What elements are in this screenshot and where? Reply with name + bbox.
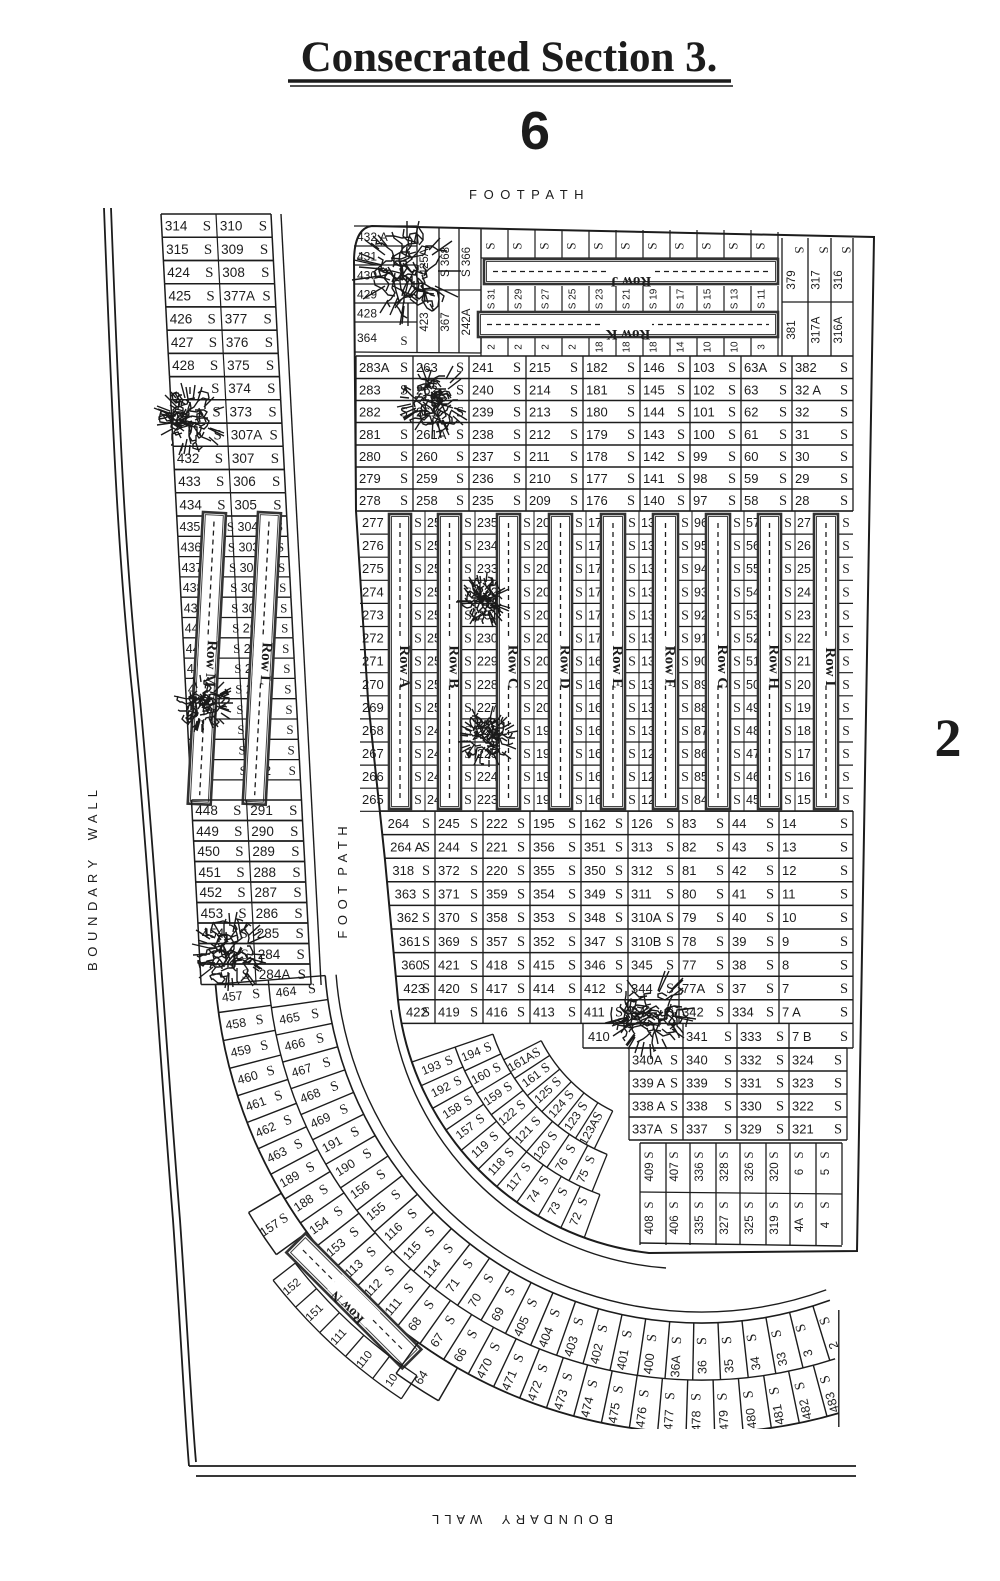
svg-text:S: S bbox=[568, 863, 576, 879]
svg-text:S: S bbox=[627, 405, 635, 421]
svg-text:24: 24 bbox=[797, 585, 811, 599]
svg-text:S 19: S 19 bbox=[649, 288, 660, 309]
svg-text:266: 266 bbox=[362, 769, 384, 784]
svg-text:S: S bbox=[289, 763, 296, 778]
svg-text:331: 331 bbox=[740, 1076, 762, 1091]
svg-text:S 13: S 13 bbox=[730, 288, 741, 309]
svg-text:S: S bbox=[264, 312, 272, 328]
svg-text:S: S bbox=[840, 981, 848, 997]
svg-text:326: 326 bbox=[744, 1162, 756, 1181]
svg-text:S: S bbox=[236, 702, 243, 717]
svg-text:S: S bbox=[271, 451, 279, 467]
svg-text:400: 400 bbox=[641, 1353, 657, 1375]
svg-text:S: S bbox=[470, 1005, 478, 1021]
svg-text:S: S bbox=[627, 493, 635, 509]
svg-text:238: 238 bbox=[472, 427, 494, 442]
svg-text:S: S bbox=[733, 655, 741, 670]
svg-text:S: S bbox=[842, 631, 850, 646]
svg-text:333: 333 bbox=[740, 1029, 762, 1044]
svg-text:S: S bbox=[839, 246, 854, 253]
svg-text:S: S bbox=[691, 1151, 706, 1158]
svg-text:352: 352 bbox=[533, 934, 555, 949]
svg-text:S: S bbox=[666, 1201, 681, 1208]
svg-text:S: S bbox=[716, 934, 724, 950]
svg-text:S: S bbox=[523, 747, 531, 762]
svg-text:S: S bbox=[670, 1099, 678, 1115]
svg-text:S: S bbox=[517, 1005, 525, 1021]
svg-text:S: S bbox=[716, 887, 724, 903]
svg-text:182: 182 bbox=[586, 360, 608, 375]
svg-text:81: 81 bbox=[682, 863, 696, 878]
svg-text:235: 235 bbox=[477, 516, 498, 530]
svg-text:S: S bbox=[724, 1122, 732, 1138]
svg-text:S: S bbox=[628, 701, 636, 716]
svg-text:S: S bbox=[681, 539, 689, 554]
svg-text:S: S bbox=[464, 770, 472, 785]
svg-text:229: 229 bbox=[477, 655, 498, 669]
svg-text:S: S bbox=[232, 621, 239, 636]
svg-text:374: 374 bbox=[228, 381, 251, 396]
svg-text:S: S bbox=[842, 723, 850, 738]
svg-text:S 366: S 366 bbox=[461, 247, 473, 277]
svg-text:142: 142 bbox=[643, 449, 665, 464]
svg-text:259: 259 bbox=[416, 471, 438, 486]
svg-text:353: 353 bbox=[533, 910, 555, 925]
svg-text:356: 356 bbox=[533, 839, 555, 854]
svg-text:82: 82 bbox=[682, 839, 696, 854]
svg-text:S: S bbox=[627, 449, 635, 465]
svg-text:S: S bbox=[728, 471, 736, 487]
svg-text:Row A: Row A bbox=[396, 645, 412, 688]
svg-text:212: 212 bbox=[529, 427, 551, 442]
svg-text:S: S bbox=[840, 1005, 848, 1021]
svg-text:S: S bbox=[464, 793, 472, 808]
svg-text:S: S bbox=[237, 722, 244, 737]
svg-text:59: 59 bbox=[744, 471, 758, 486]
svg-text:377: 377 bbox=[225, 312, 248, 327]
svg-text:408: 408 bbox=[644, 1215, 656, 1234]
svg-text:141: 141 bbox=[643, 471, 665, 486]
svg-text:S: S bbox=[666, 887, 674, 903]
svg-text:S: S bbox=[575, 539, 583, 554]
svg-text:S: S bbox=[513, 383, 521, 399]
svg-text:S: S bbox=[681, 632, 689, 647]
svg-text:S: S bbox=[817, 1201, 832, 1208]
svg-text:237: 237 bbox=[472, 449, 494, 464]
svg-text:S: S bbox=[724, 1076, 732, 1092]
svg-text:311: 311 bbox=[631, 887, 652, 902]
svg-text:285: 285 bbox=[257, 926, 280, 941]
svg-text:288: 288 bbox=[254, 865, 277, 880]
svg-text:S: S bbox=[456, 449, 464, 465]
svg-text:S: S bbox=[834, 1053, 842, 1069]
svg-text:S: S bbox=[784, 793, 792, 808]
svg-text:S: S bbox=[779, 427, 787, 443]
svg-text:S: S bbox=[792, 246, 807, 253]
svg-text:S: S bbox=[260, 242, 268, 258]
svg-text:S: S bbox=[283, 661, 290, 676]
svg-text:2: 2 bbox=[514, 344, 525, 350]
svg-text:S: S bbox=[236, 865, 244, 881]
svg-text:S: S bbox=[464, 539, 472, 554]
svg-text:429: 429 bbox=[357, 288, 377, 302]
svg-text:214: 214 bbox=[529, 383, 551, 398]
svg-text:314: 314 bbox=[165, 219, 188, 234]
svg-text:S: S bbox=[523, 585, 531, 600]
svg-text:27: 27 bbox=[797, 516, 811, 530]
svg-text:S: S bbox=[513, 449, 521, 465]
svg-text:S: S bbox=[575, 562, 583, 577]
svg-text:406: 406 bbox=[669, 1215, 681, 1234]
svg-text:278: 278 bbox=[359, 493, 381, 508]
svg-text:144: 144 bbox=[643, 405, 665, 420]
svg-text:363: 363 bbox=[395, 887, 417, 902]
svg-text:279: 279 bbox=[359, 471, 381, 486]
svg-text:S: S bbox=[628, 724, 636, 739]
svg-text:21: 21 bbox=[797, 655, 811, 669]
svg-text:261A: 261A bbox=[416, 427, 447, 442]
svg-text:S: S bbox=[570, 471, 578, 487]
svg-text:S: S bbox=[575, 678, 583, 693]
svg-text:S: S bbox=[523, 632, 531, 647]
svg-text:S: S bbox=[842, 608, 850, 623]
svg-text:S: S bbox=[470, 981, 478, 997]
svg-text:S: S bbox=[464, 701, 472, 716]
svg-text:18: 18 bbox=[595, 341, 606, 353]
svg-text:354: 354 bbox=[533, 887, 555, 902]
svg-text:77: 77 bbox=[682, 957, 696, 972]
svg-text:S: S bbox=[282, 641, 289, 656]
svg-text:S: S bbox=[766, 863, 774, 879]
svg-text:417: 417 bbox=[486, 981, 508, 996]
svg-text:304: 304 bbox=[238, 520, 259, 534]
svg-text:264 A: 264 A bbox=[390, 839, 424, 854]
svg-text:B O U N D A R Y W A L L: B O U N D A R Y W A L L bbox=[431, 1512, 613, 1527]
svg-text:18: 18 bbox=[797, 724, 811, 738]
svg-text:367: 367 bbox=[440, 312, 452, 331]
svg-text:213: 213 bbox=[529, 405, 551, 420]
svg-text:S: S bbox=[234, 824, 242, 840]
svg-text:S: S bbox=[575, 793, 583, 808]
svg-text:307A: 307A bbox=[231, 428, 263, 443]
svg-text:412: 412 bbox=[584, 981, 606, 996]
svg-text:S: S bbox=[307, 982, 316, 998]
svg-text:338: 338 bbox=[686, 1099, 708, 1114]
svg-text:S: S bbox=[784, 516, 792, 531]
svg-text:227: 227 bbox=[477, 701, 498, 715]
svg-text:Row G: Row G bbox=[714, 645, 730, 690]
svg-text:S: S bbox=[834, 1076, 842, 1092]
svg-text:330: 330 bbox=[740, 1099, 762, 1114]
svg-text:S: S bbox=[215, 451, 223, 467]
svg-text:407: 407 bbox=[669, 1162, 681, 1181]
svg-text:63: 63 bbox=[744, 383, 758, 398]
svg-text:215: 215 bbox=[529, 360, 551, 375]
svg-text:235: 235 bbox=[472, 493, 494, 508]
svg-text:478: 478 bbox=[689, 1411, 703, 1432]
svg-text:S: S bbox=[233, 641, 240, 656]
svg-text:35: 35 bbox=[722, 1359, 737, 1374]
svg-text:S: S bbox=[724, 1029, 732, 1045]
svg-text:349: 349 bbox=[584, 887, 606, 902]
svg-text:S: S bbox=[741, 1151, 756, 1158]
svg-text:321: 321 bbox=[792, 1122, 814, 1137]
svg-text:S: S bbox=[670, 1336, 685, 1345]
svg-text:316: 316 bbox=[833, 270, 845, 289]
svg-text:270: 270 bbox=[362, 677, 384, 692]
svg-text:S: S bbox=[235, 682, 242, 697]
svg-text:7 B: 7 B bbox=[792, 1029, 812, 1044]
svg-text:S: S bbox=[414, 609, 422, 624]
svg-text:377A: 377A bbox=[224, 288, 256, 303]
svg-text:S: S bbox=[834, 1099, 842, 1115]
svg-text:223: 223 bbox=[477, 793, 498, 807]
svg-text:220: 220 bbox=[486, 863, 508, 878]
svg-text:S: S bbox=[615, 957, 623, 973]
svg-text:371: 371 bbox=[438, 887, 460, 902]
svg-text:209: 209 bbox=[529, 493, 551, 508]
svg-text:S: S bbox=[677, 427, 685, 443]
svg-text:39: 39 bbox=[732, 934, 746, 949]
svg-text:S: S bbox=[517, 910, 525, 926]
svg-text:S: S bbox=[681, 655, 689, 670]
svg-text:S: S bbox=[766, 1201, 781, 1208]
svg-text:425: 425 bbox=[169, 288, 192, 303]
svg-text:126: 126 bbox=[631, 816, 653, 831]
svg-text:275: 275 bbox=[362, 561, 384, 576]
svg-text:S: S bbox=[456, 493, 464, 509]
svg-text:316A: 316A bbox=[833, 316, 845, 343]
svg-text:S: S bbox=[733, 585, 741, 600]
svg-text:S: S bbox=[627, 383, 635, 399]
svg-text:236: 236 bbox=[472, 471, 494, 486]
svg-text:S: S bbox=[677, 471, 685, 487]
svg-text:36A: 36A bbox=[668, 1354, 683, 1378]
svg-text:S: S bbox=[840, 360, 848, 376]
svg-text:324: 324 bbox=[792, 1053, 814, 1068]
svg-text:S 15: S 15 bbox=[703, 288, 714, 309]
svg-text:S: S bbox=[470, 863, 478, 879]
svg-text:451: 451 bbox=[199, 865, 222, 880]
svg-text:38: 38 bbox=[732, 957, 746, 972]
svg-text:S: S bbox=[568, 839, 576, 855]
svg-text:370: 370 bbox=[438, 910, 460, 925]
svg-text:S: S bbox=[817, 246, 832, 253]
svg-text:Row E: Row E bbox=[609, 645, 625, 688]
svg-text:S: S bbox=[228, 539, 235, 554]
svg-text:S: S bbox=[666, 1151, 681, 1158]
svg-text:S: S bbox=[663, 1392, 678, 1401]
svg-text:10: 10 bbox=[782, 910, 796, 925]
svg-text:339: 339 bbox=[686, 1076, 708, 1091]
svg-text:S: S bbox=[728, 383, 736, 399]
svg-text:S: S bbox=[733, 678, 741, 693]
svg-text:S: S bbox=[779, 360, 787, 376]
svg-text:230: 230 bbox=[477, 632, 498, 646]
svg-text:S: S bbox=[293, 885, 301, 901]
svg-text:12: 12 bbox=[782, 863, 796, 878]
svg-text:S: S bbox=[414, 678, 422, 693]
svg-text:336: 336 bbox=[694, 1162, 706, 1181]
svg-text:181: 181 bbox=[586, 383, 608, 398]
svg-text:S: S bbox=[575, 655, 583, 670]
svg-text:S: S bbox=[791, 1151, 806, 1158]
svg-text:322: 322 bbox=[792, 1099, 814, 1114]
svg-text:178: 178 bbox=[586, 449, 608, 464]
svg-text:345: 345 bbox=[631, 957, 653, 972]
svg-text:S: S bbox=[776, 1099, 784, 1115]
svg-text:32: 32 bbox=[795, 405, 809, 420]
svg-text:267: 267 bbox=[362, 746, 384, 761]
svg-text:358: 358 bbox=[486, 910, 508, 925]
svg-text:162: 162 bbox=[584, 816, 606, 831]
svg-text:S: S bbox=[230, 580, 237, 595]
svg-text:305: 305 bbox=[234, 497, 257, 512]
svg-text:S: S bbox=[733, 701, 741, 716]
svg-text:S: S bbox=[615, 934, 623, 950]
svg-text:S: S bbox=[724, 1099, 732, 1115]
svg-text:S: S bbox=[294, 906, 302, 922]
svg-text:S: S bbox=[840, 493, 848, 509]
svg-text:S: S bbox=[523, 678, 531, 693]
svg-text:S: S bbox=[840, 839, 848, 855]
svg-text:S: S bbox=[615, 839, 623, 855]
svg-text:43: 43 bbox=[732, 839, 746, 854]
svg-text:S: S bbox=[400, 333, 407, 348]
svg-text:S: S bbox=[517, 887, 525, 903]
svg-text:S: S bbox=[575, 632, 583, 647]
svg-text:S: S bbox=[615, 863, 623, 879]
svg-text:S: S bbox=[766, 957, 774, 973]
svg-text:S: S bbox=[287, 742, 294, 757]
svg-text:S: S bbox=[628, 516, 636, 531]
svg-text:S: S bbox=[766, 910, 774, 926]
svg-text:26: 26 bbox=[797, 539, 811, 553]
svg-text:355: 355 bbox=[533, 863, 555, 878]
svg-text:341: 341 bbox=[686, 1029, 708, 1044]
svg-text:S: S bbox=[456, 383, 464, 399]
svg-text:310A: 310A bbox=[631, 910, 662, 925]
svg-text:241: 241 bbox=[472, 360, 494, 375]
svg-text:S: S bbox=[672, 242, 687, 249]
svg-text:S: S bbox=[231, 600, 238, 615]
svg-text:S: S bbox=[840, 934, 848, 950]
svg-text:S: S bbox=[695, 1337, 710, 1345]
svg-text:S: S bbox=[628, 655, 636, 670]
svg-text:10: 10 bbox=[703, 341, 714, 353]
svg-text:283A: 283A bbox=[359, 360, 390, 375]
svg-text:317: 317 bbox=[811, 270, 823, 289]
svg-text:S: S bbox=[681, 724, 689, 739]
svg-text:S: S bbox=[513, 493, 521, 509]
svg-text:7 A: 7 A bbox=[782, 1005, 801, 1020]
svg-text:337A: 337A bbox=[632, 1122, 663, 1137]
svg-text:S: S bbox=[670, 1076, 678, 1092]
svg-text:77A: 77A bbox=[682, 981, 705, 996]
svg-text:414: 414 bbox=[533, 981, 555, 996]
svg-text:S: S bbox=[422, 957, 430, 973]
svg-text:312: 312 bbox=[631, 863, 653, 878]
svg-text:S: S bbox=[414, 655, 422, 670]
svg-text:S: S bbox=[641, 1151, 656, 1158]
svg-text:310B: 310B bbox=[631, 934, 661, 949]
svg-text:453: 453 bbox=[201, 906, 224, 921]
svg-text:195: 195 bbox=[533, 816, 555, 831]
svg-text:S: S bbox=[627, 360, 635, 376]
svg-text:7: 7 bbox=[782, 981, 789, 996]
svg-text:428: 428 bbox=[172, 358, 195, 373]
svg-text:S: S bbox=[568, 887, 576, 903]
svg-text:S: S bbox=[776, 1029, 784, 1045]
svg-text:4: 4 bbox=[820, 1221, 832, 1228]
svg-text:62: 62 bbox=[744, 405, 758, 420]
svg-text:S: S bbox=[575, 609, 583, 624]
svg-text:B O U N D A R Y W A L L: B O U N D A R Y W A L L bbox=[85, 789, 100, 971]
svg-text:S: S bbox=[715, 1392, 730, 1401]
svg-text:S: S bbox=[523, 724, 531, 739]
svg-text:97: 97 bbox=[693, 493, 707, 508]
svg-text:268: 268 bbox=[362, 723, 384, 738]
svg-text:S: S bbox=[523, 793, 531, 808]
svg-text:S: S bbox=[628, 585, 636, 600]
svg-text:S: S bbox=[289, 803, 297, 819]
svg-text:S: S bbox=[733, 609, 741, 624]
svg-text:347: 347 bbox=[584, 934, 606, 949]
svg-text:277: 277 bbox=[362, 515, 384, 530]
svg-text:S: S bbox=[791, 1201, 806, 1208]
svg-text:177: 177 bbox=[586, 471, 608, 486]
svg-text:S: S bbox=[842, 561, 850, 576]
svg-text:S: S bbox=[776, 1076, 784, 1092]
svg-text:S: S bbox=[681, 770, 689, 785]
svg-text:S 11: S 11 bbox=[757, 289, 768, 309]
svg-text:F O O T P A T H: F O O T P A T H bbox=[469, 187, 585, 202]
svg-text:S: S bbox=[776, 1122, 784, 1138]
svg-text:359: 359 bbox=[486, 887, 508, 902]
svg-text:S: S bbox=[568, 1005, 576, 1021]
svg-text:313: 313 bbox=[631, 839, 653, 854]
svg-text:S: S bbox=[575, 724, 583, 739]
svg-text:S: S bbox=[470, 957, 478, 973]
svg-text:S: S bbox=[252, 987, 261, 1003]
svg-text:S: S bbox=[840, 957, 848, 973]
svg-text:S: S bbox=[784, 678, 792, 693]
svg-text:Row F: Row F bbox=[662, 646, 678, 688]
svg-text:S: S bbox=[216, 474, 224, 490]
svg-text:S: S bbox=[570, 383, 578, 399]
svg-text:286: 286 bbox=[256, 906, 279, 921]
svg-text:328: 328 bbox=[719, 1162, 731, 1181]
svg-text:S: S bbox=[273, 497, 281, 513]
svg-text:S: S bbox=[615, 981, 623, 997]
svg-text:179: 179 bbox=[586, 427, 608, 442]
svg-text:S: S bbox=[400, 471, 408, 487]
svg-text:S: S bbox=[575, 747, 583, 762]
svg-text:S: S bbox=[464, 655, 472, 670]
svg-text:421: 421 bbox=[438, 957, 460, 972]
svg-text:S: S bbox=[840, 863, 848, 879]
svg-text:S: S bbox=[720, 1336, 736, 1345]
svg-text:S: S bbox=[716, 1151, 731, 1158]
svg-text:S 23: S 23 bbox=[595, 288, 606, 309]
svg-text:34: 34 bbox=[748, 1356, 764, 1372]
svg-text:29: 29 bbox=[795, 471, 809, 486]
svg-text:S: S bbox=[766, 1151, 781, 1158]
svg-text:28: 28 bbox=[795, 493, 809, 508]
svg-text:382: 382 bbox=[795, 360, 817, 375]
svg-text:S: S bbox=[414, 585, 422, 600]
svg-text:222: 222 bbox=[486, 816, 508, 831]
